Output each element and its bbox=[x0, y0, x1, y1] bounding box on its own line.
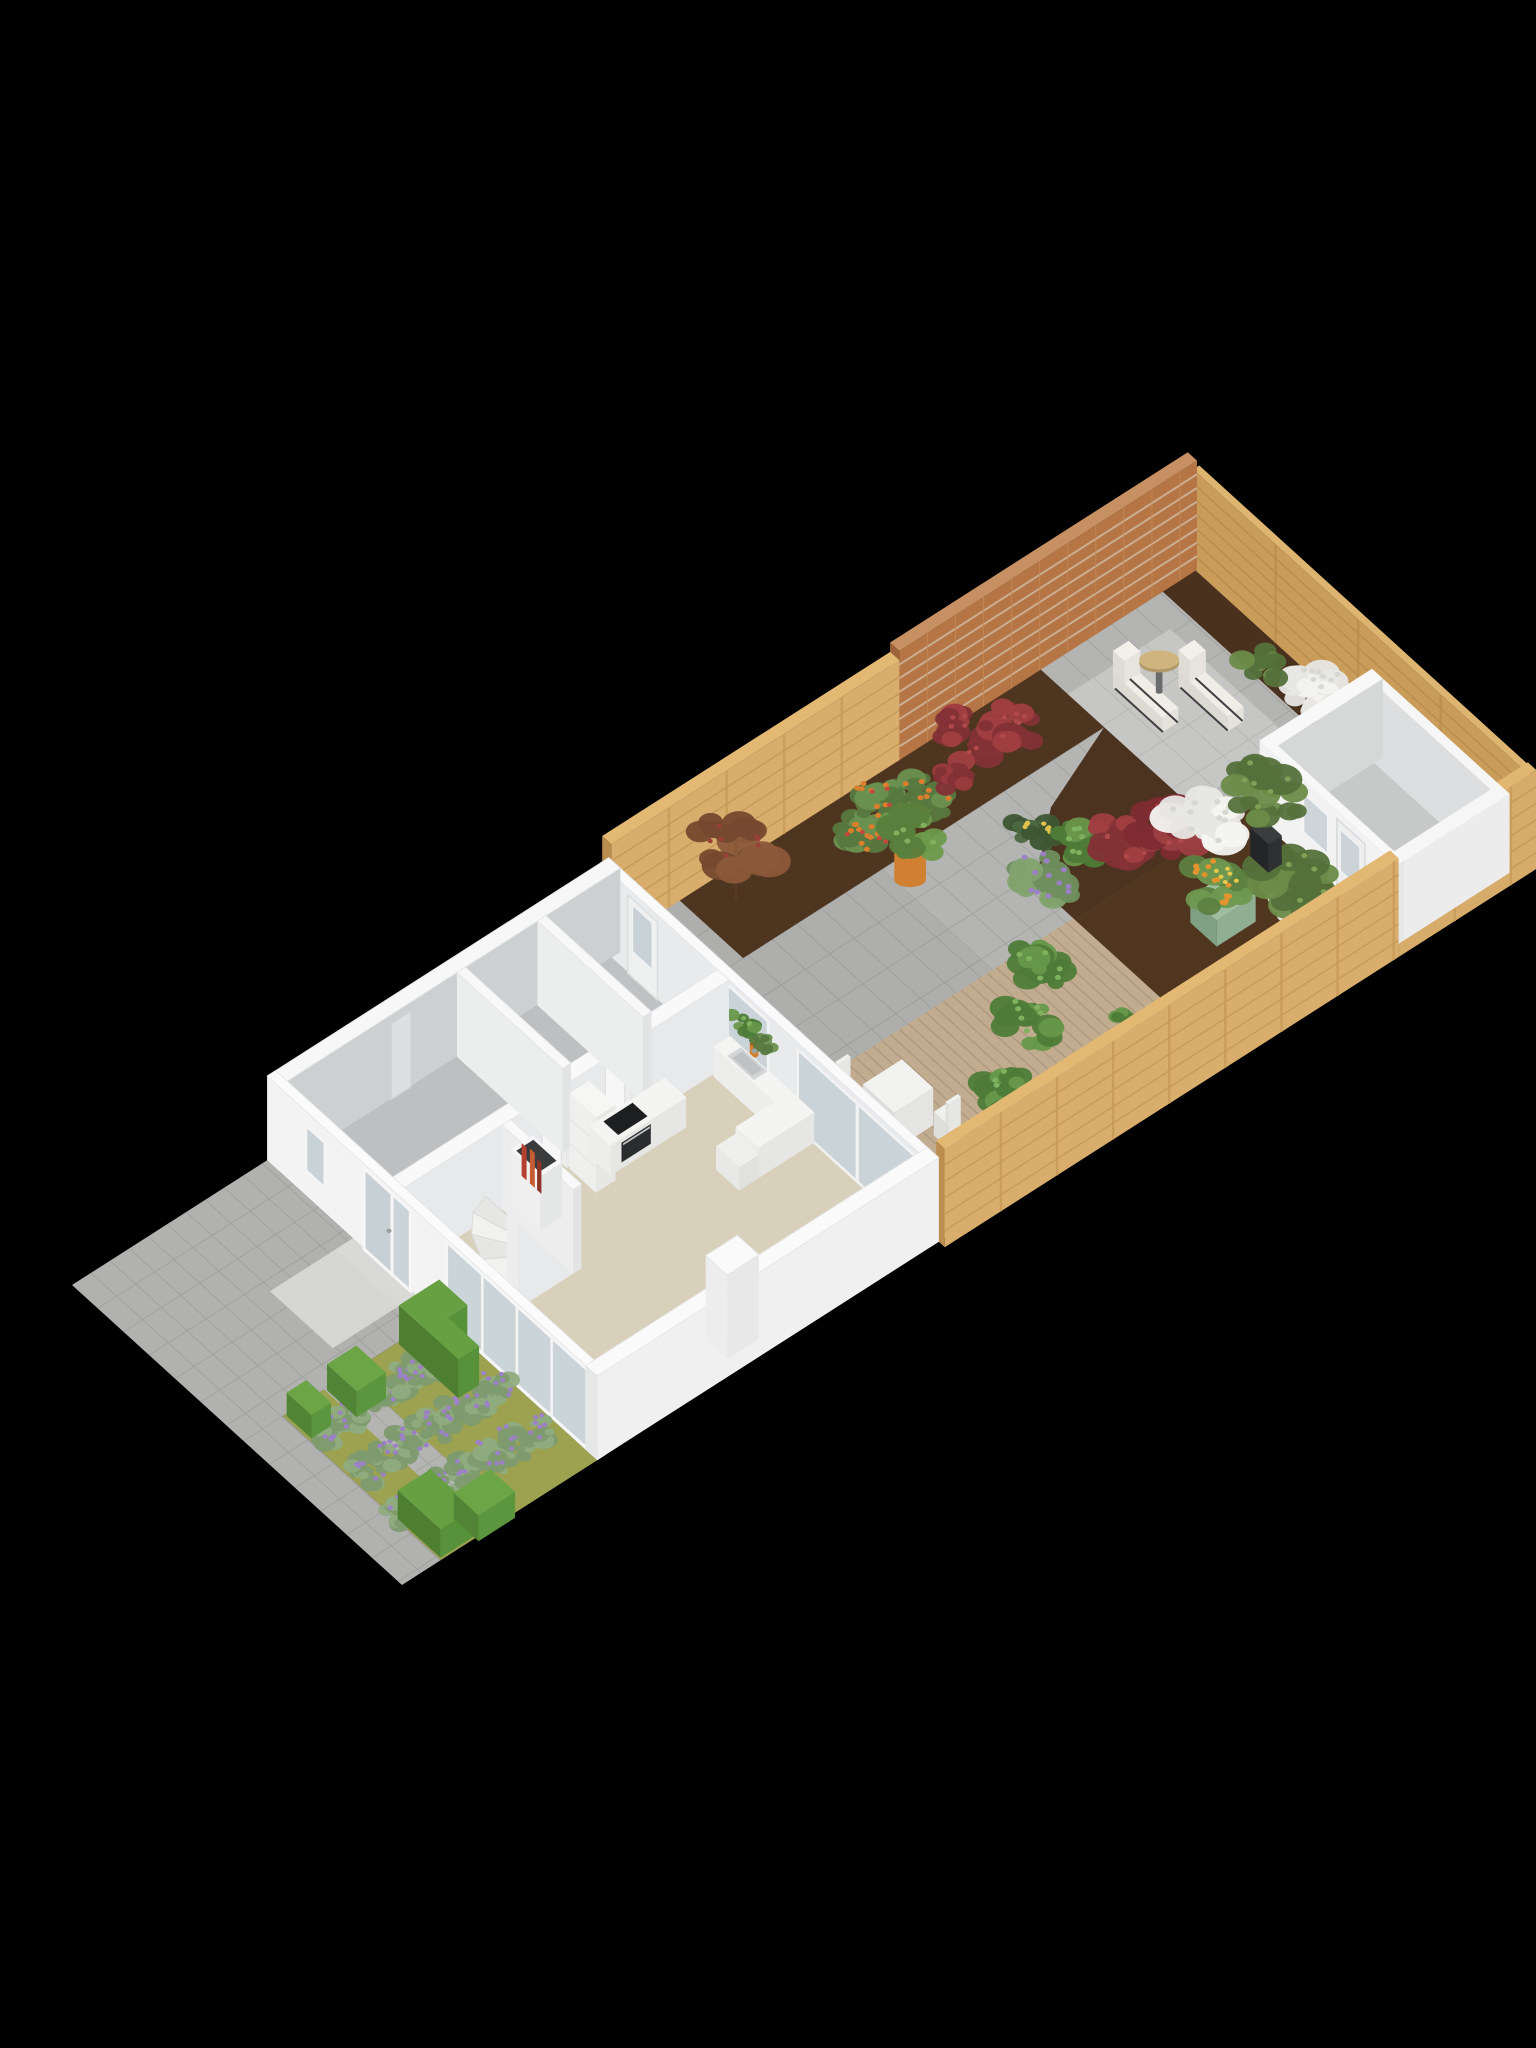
garage-left-wall-door bbox=[391, 1011, 411, 1099]
boiler-red-1 bbox=[522, 1143, 527, 1180]
boiler-red-3 bbox=[537, 1159, 541, 1194]
front-window-mullion-1 bbox=[481, 1274, 484, 1355]
front-window-mullion-3 bbox=[550, 1337, 553, 1418]
floorplan-3d-render bbox=[0, 0, 1536, 2048]
floorplan-page bbox=[0, 0, 1536, 2048]
front-door-sidelight bbox=[392, 1194, 410, 1291]
back-sliding-doors-mullion bbox=[856, 1103, 859, 1184]
front-door-handle bbox=[386, 1229, 391, 1233]
kitchen-faucet bbox=[751, 1048, 757, 1053]
round-table-top bbox=[1139, 650, 1179, 669]
chimney-breast bbox=[706, 1235, 759, 1359]
boiler-red-2 bbox=[530, 1149, 535, 1188]
